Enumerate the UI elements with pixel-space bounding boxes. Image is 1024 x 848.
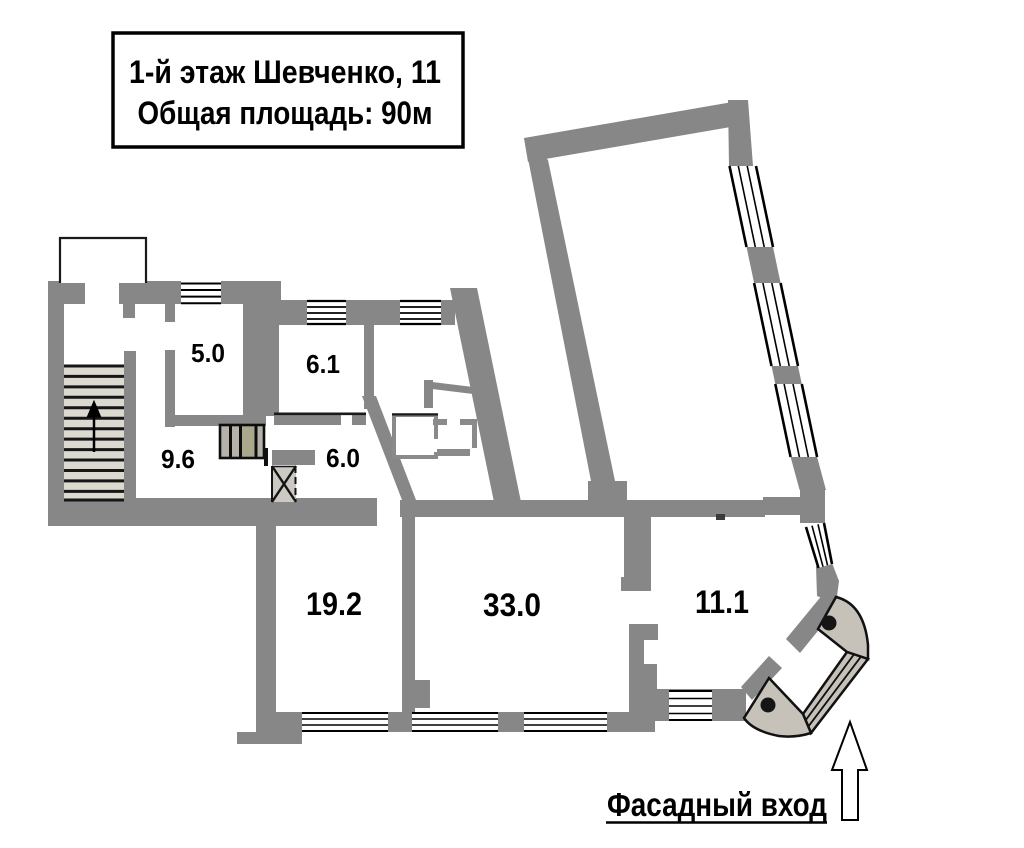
svg-text:33.0: 33.0 (483, 587, 541, 623)
svg-text:Фасадный вход: Фасадный вход (607, 786, 827, 823)
svg-text:Общая площадь: 90м: Общая площадь: 90м (138, 95, 433, 131)
svg-text:11.1: 11.1 (695, 584, 749, 620)
svg-text:6.0: 6.0 (326, 443, 360, 473)
svg-text:1-й этаж Шевченко, 11: 1-й этаж Шевченко, 11 (129, 54, 441, 90)
svg-text:9.6: 9.6 (161, 444, 195, 474)
svg-text:6.1: 6.1 (306, 349, 340, 379)
svg-text:19.2: 19.2 (306, 586, 362, 622)
svg-text:5.0: 5.0 (191, 338, 225, 368)
